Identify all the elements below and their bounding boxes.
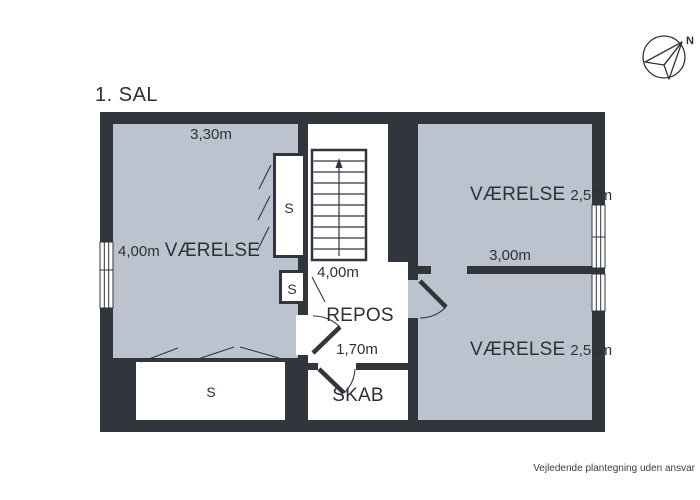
divider-wall-stub: [418, 266, 431, 274]
landing-label: REPOS: [326, 305, 394, 326]
compass-north-label: N: [686, 35, 694, 47]
bottom-wardrobe: S: [136, 362, 285, 420]
top-right-room-label: VÆRELSE2,50m: [470, 184, 612, 205]
window-right-bottom: [592, 274, 605, 311]
closet-label: SKAB: [332, 385, 384, 406]
floor-title: 1. SAL: [95, 84, 158, 106]
wardrobe-label: S: [206, 384, 215, 400]
landing-right-wall-top: [408, 262, 418, 280]
left-room-label: 4,00mVÆRELSE: [118, 240, 260, 261]
divider-wall: [467, 266, 592, 274]
wardrobe-label: S: [284, 200, 293, 216]
wardrobe-label: S: [287, 281, 296, 297]
floorplan-drawing: 1. SAL N S S S: [0, 0, 700, 500]
compass-icon: N: [643, 35, 694, 79]
upper-wardrobe: S: [273, 153, 306, 258]
window-left: [100, 242, 113, 308]
small-wardrobe: S: [279, 270, 306, 304]
window-right-top: [592, 205, 605, 268]
disclaimer-text: Vejledende plantegning uden ansvar: [533, 463, 695, 474]
landing-right-wall-bottom: [408, 318, 418, 420]
stair-shaft-wall: [388, 124, 418, 262]
top-right-room-width: 3,00m: [489, 247, 531, 264]
left-room-door-opening: [296, 315, 308, 355]
landing-width: 1,70m: [336, 341, 378, 358]
left-room-depth: 3,30m: [190, 126, 232, 143]
staircase: [312, 150, 366, 260]
bottom-right-room-label: VÆRELSE2,50m: [470, 339, 612, 360]
floorplan-page: 1. SAL N S S S: [0, 0, 700, 500]
skab-door-opening: [318, 363, 356, 370]
stairs-width: 4,00m: [317, 264, 359, 281]
